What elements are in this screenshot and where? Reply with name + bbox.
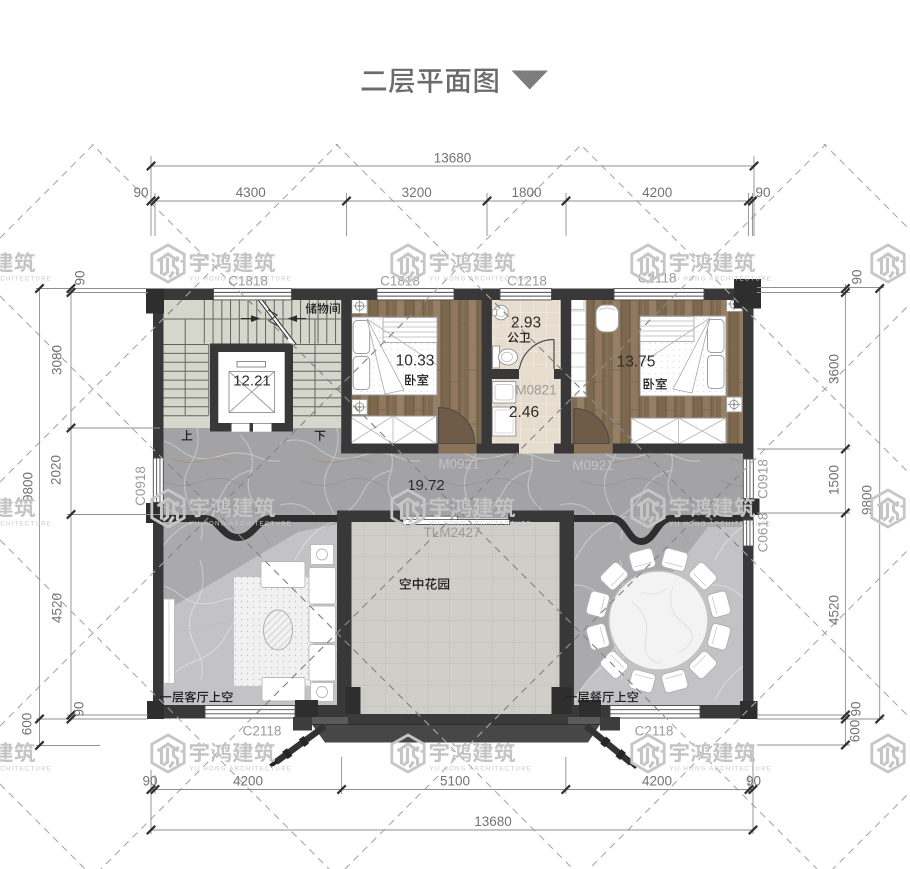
svg-text:4200: 4200 — [642, 185, 672, 200]
svg-text:C0618: C0618 — [756, 513, 771, 553]
svg-text:C2118: C2118 — [243, 724, 282, 739]
svg-text:600: 600 — [20, 713, 35, 736]
svg-text:13680: 13680 — [434, 151, 472, 166]
svg-text:600: 600 — [848, 720, 863, 743]
svg-text:C1818: C1818 — [380, 274, 420, 289]
svg-text:3600: 3600 — [827, 354, 842, 384]
svg-text:2020: 2020 — [49, 455, 64, 485]
svg-text:90: 90 — [73, 270, 88, 285]
svg-text:M0921: M0921 — [572, 458, 613, 473]
svg-text:10.33: 10.33 — [396, 352, 435, 369]
svg-text:5100: 5100 — [440, 774, 470, 789]
svg-text:1800: 1800 — [511, 185, 541, 200]
svg-text:4200: 4200 — [642, 774, 672, 789]
svg-text:13680: 13680 — [474, 814, 512, 829]
svg-text:4520: 4520 — [827, 595, 842, 625]
svg-text:90: 90 — [142, 774, 157, 789]
svg-text:90: 90 — [755, 185, 770, 200]
svg-text:C2118: C2118 — [635, 724, 674, 739]
svg-text:4520: 4520 — [50, 593, 65, 623]
svg-text:90: 90 — [850, 269, 865, 284]
svg-text:M0921: M0921 — [438, 457, 479, 472]
svg-text:C0918: C0918 — [133, 466, 148, 506]
svg-text:12.21: 12.21 — [233, 373, 271, 390]
svg-text:90: 90 — [72, 701, 87, 716]
svg-text:1500: 1500 — [827, 465, 842, 495]
svg-text:C0918: C0918 — [756, 459, 771, 499]
svg-text:4300: 4300 — [236, 185, 266, 200]
svg-text:4200: 4200 — [233, 774, 263, 789]
svg-text:90: 90 — [849, 701, 864, 716]
svg-text:M0821: M0821 — [515, 383, 556, 398]
svg-text:2.46: 2.46 — [509, 404, 539, 421]
svg-text:90: 90 — [133, 185, 148, 200]
svg-text:3200: 3200 — [402, 185, 432, 200]
svg-text:2.93: 2.93 — [511, 314, 541, 331]
svg-text:3080: 3080 — [50, 345, 65, 375]
svg-text:90: 90 — [746, 774, 761, 789]
svg-text:13.75: 13.75 — [617, 353, 656, 370]
